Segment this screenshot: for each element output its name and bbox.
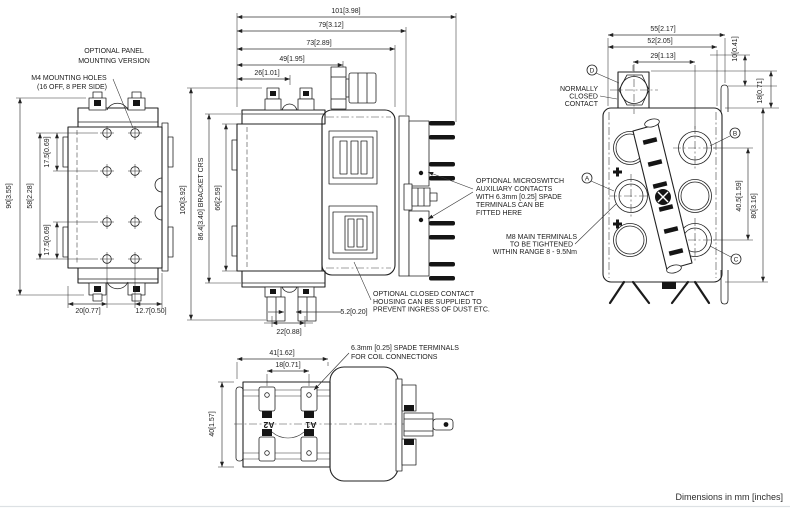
housing-note-line1: OPTIONAL CLOSED CONTACT: [373, 291, 475, 298]
contactor-dimension-drawing: OPTIONAL PANEL MOUNTING VERSION M4 MOUNT…: [0, 0, 790, 510]
coil-terminal-a1-label: A1: [305, 420, 316, 430]
left-tab-upper-right: [168, 137, 173, 167]
left-tab-lower-left: [63, 227, 68, 257]
units-note: Dimensions in mm [inches]: [675, 492, 783, 502]
left-body-top-bracket: [78, 108, 158, 127]
nc-note-line2: CLOSED: [569, 94, 598, 101]
side-m8-terminal-stack: [404, 184, 437, 210]
spade-note-line1: 6.3mm [0.25] SPADE TERMINALS: [351, 345, 459, 352]
dim-blade-pitch: 22[0.88]: [276, 329, 301, 336]
m4-holes-note: M4 MOUNTING HOLES: [31, 75, 107, 82]
dim-left-hole-pitch-bottom: 17.5[0.69]: [44, 224, 51, 255]
dim-left-hole-pitch-top: 17.5[0.69]: [44, 136, 51, 167]
nc-note: NORMALLY CLOSED CONTACT: [560, 86, 617, 108]
front-view: 101[3.98] 79[3.12] 73[2.89] 49[1.95] 26[…: [180, 8, 616, 336]
m8-terminal-stack: [331, 67, 376, 109]
dim-bottom-width: 41[1.62]: [269, 350, 294, 357]
front-top-bracket: [242, 110, 325, 124]
terminal-label-c: C: [734, 257, 739, 264]
m4-mounting-holes: [100, 126, 142, 266]
front-left-dimensions: 100[3.92] 86.4[3.40] BRACKET CRS 66[2.59…: [180, 88, 266, 320]
dim-side-top-offset: 10[0.41]: [732, 36, 739, 61]
dim-overall-height: 100[3.92]: [180, 185, 187, 214]
left-body-face: [68, 127, 162, 268]
nc-note-line3: CONTACT: [565, 101, 599, 108]
left-top-spade-terminals: [89, 92, 145, 110]
dim-side-nc-height: 18[0.71]: [757, 78, 764, 103]
terminal-label-a: A: [585, 176, 590, 183]
left-notch-upper: [155, 178, 162, 192]
housing-note-line3: PREVENT INGRESS OF DUST ETC.: [373, 307, 490, 314]
left-view-title-line2: MOUNTING VERSION: [78, 58, 150, 65]
left-view-panel-mount: OPTIONAL PANEL MOUNTING VERSION M4 MOUNT…: [6, 48, 173, 315]
front-top-spade-terminals: [265, 88, 314, 110]
left-tab-lower-right: [168, 227, 173, 257]
dim-terminal-stack-width: 49[1.95]: [279, 56, 304, 63]
left-bottom-spade-terminals: [89, 282, 145, 301]
dim-bracket-crs: 86.4[3.40] BRACKET CRS: [198, 157, 205, 240]
spring-legs: [610, 282, 709, 303]
coil-terminal-a2-label: A2: [263, 420, 274, 430]
m8-note-line1: M8 MAIN TERMINALS: [506, 234, 577, 241]
front-bottom-spade-blades: [265, 287, 316, 321]
dim-body-height: 66[2.59]: [215, 185, 222, 210]
dim-body-width: 73[2.89]: [306, 40, 331, 47]
dim-side-terminal-pitch: 40.5[1.59]: [736, 180, 743, 211]
left-view-title: OPTIONAL PANEL: [84, 48, 144, 55]
dim-side-contact-pitch: 29[1.13]: [650, 53, 675, 60]
left-side-strip: [162, 123, 168, 271]
upper-contact-window: [329, 131, 377, 184]
dim-left-hole-span: 58[2.28]: [27, 183, 34, 208]
lower-contact-window: [329, 206, 377, 259]
engineering-drawing-sheet: OPTIONAL PANEL MOUNTING VERSION M4 MOUNT…: [0, 0, 790, 510]
front-coil-face: [237, 124, 322, 271]
dim-left-foot-right: 12.7[0.50]: [135, 308, 166, 315]
dim-bottom-terminal-pitch: 18[0.71]: [275, 362, 300, 369]
left-tab-upper-left: [63, 137, 68, 167]
dim-overall-width: 101[3.98]: [331, 8, 360, 15]
dim-side-inner-width: 52[2.05]: [647, 38, 672, 45]
dim-side-height: 80[3.16]: [751, 193, 758, 218]
front-bottom-bracket: [242, 271, 325, 287]
microswitch-note-line2: AUXILIARY CONTACTS: [476, 186, 553, 193]
spade-note-line2: FOR COIL CONNECTIONS: [351, 354, 438, 361]
dim-bracket-width: 79[3.12]: [318, 22, 343, 29]
nc-note-line1: NORMALLY: [560, 86, 598, 93]
dim-left-foot-left: 20[0.77]: [75, 308, 100, 315]
terminal-label-b: B: [733, 131, 737, 138]
microswitch-note-line1: OPTIONAL MICROSWITCH: [476, 178, 564, 185]
microswitch-note-line4: TERMINALS CAN BE: [476, 202, 544, 209]
bottom-view: 41[1.62] 18[0.71] 40[1.57]: [209, 345, 459, 481]
dim-blade-gap: 5.2[0.20]: [340, 309, 367, 316]
left-notch-lower: [155, 206, 162, 220]
front-tab-lower: [232, 226, 237, 256]
microswitch-note-line5: FITTED HERE: [476, 210, 522, 217]
front-tab-upper: [232, 140, 237, 170]
m8-note-line2: TO BE TIGHTENED: [510, 242, 573, 249]
side-view-dimensions: 55[2.17] 52[2.05] 29[1.13] 10[0.41] 18[0…: [608, 26, 779, 282]
microswitch-note-line3: WITH 6.3mm [0.25] SPADE: [476, 194, 562, 201]
housing-note-line2: HOUSING CAN BE SUPPLIED TO: [373, 299, 482, 306]
nc-contact-hex: [610, 64, 658, 114]
m8-note-line3: WITHIN RANGE 8 - 9.5Nm: [493, 249, 578, 256]
side-view: 55[2.17] 52[2.05] 29[1.13] 10[0.41] 18[0…: [560, 26, 779, 304]
bottom-right-assembly: [396, 379, 453, 471]
dim-coil-terminal-offset: 26[1.01]: [254, 70, 279, 77]
dim-left-height: 90[3.55]: [6, 183, 13, 208]
dim-bottom-height: 40[1.57]: [209, 411, 216, 436]
left-body-bottom-bracket: [78, 268, 158, 283]
terminal-label-d: D: [590, 68, 595, 75]
dim-side-overall-width: 55[2.17]: [650, 26, 675, 33]
m4-holes-note-line2: (16 OFF, 8 PER SIDE): [37, 84, 107, 91]
